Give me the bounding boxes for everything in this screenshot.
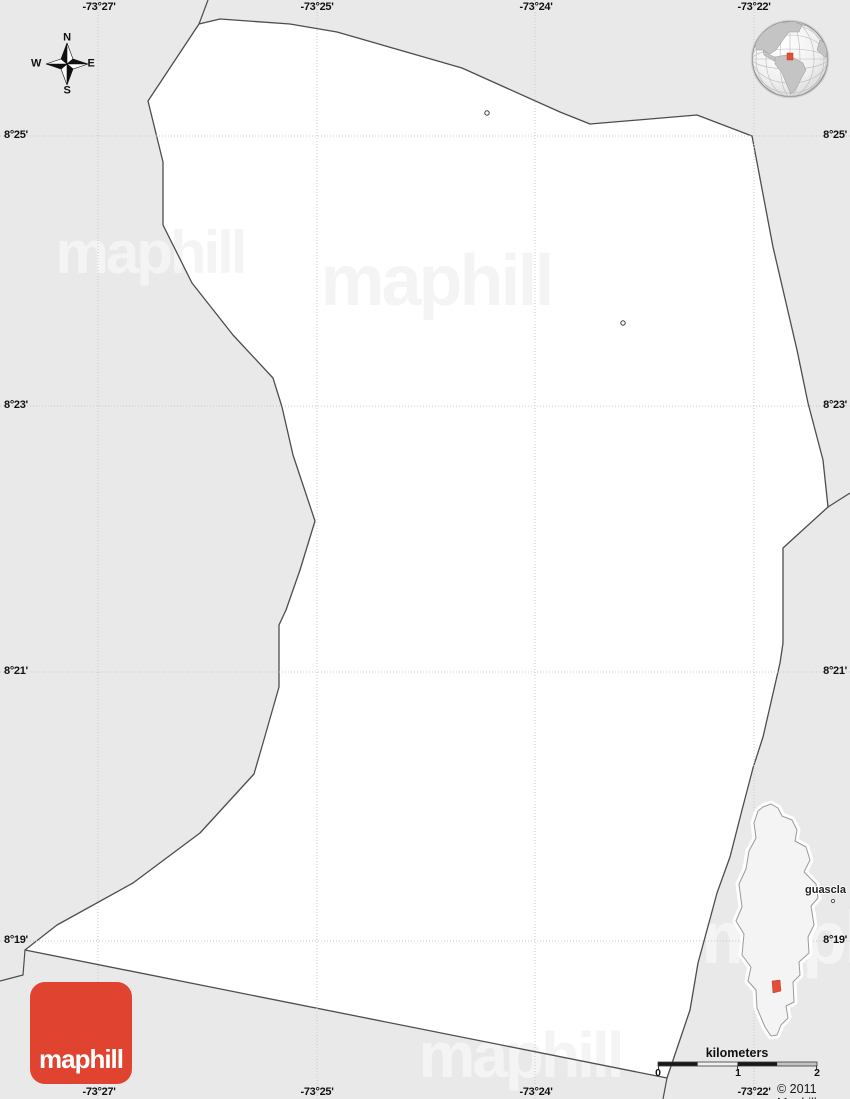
place-point-marker xyxy=(485,111,489,115)
watermark-text: maphill xyxy=(320,241,551,321)
lon-label-bottom: -73°22' xyxy=(737,1087,770,1098)
lat-label-left: 8°19' xyxy=(4,935,28,946)
lat-label-left: 8°21' xyxy=(4,666,28,677)
watermark-text: maphill xyxy=(55,219,244,286)
scale-tick-label: 2 xyxy=(814,1067,820,1079)
place-point-marker xyxy=(621,321,625,325)
lat-label-right: 8°25' xyxy=(823,130,847,141)
lat-label-left: 8°25' xyxy=(4,130,28,141)
lon-label-bottom: -73°24' xyxy=(519,1087,552,1098)
scale-tick-label: 0 xyxy=(655,1067,661,1079)
scale-bar-title: kilometers xyxy=(706,1046,769,1060)
lat-label-right: 8°21' xyxy=(823,666,847,677)
lon-label-top: -73°25' xyxy=(300,2,333,13)
maphill-logo[interactable]: maphill xyxy=(30,982,132,1084)
lat-label-right: 8°23' xyxy=(823,400,847,411)
lon-label-bottom: -73°27' xyxy=(82,1087,115,1098)
inset-highlight-marker xyxy=(772,980,781,993)
lon-label-top: -73°22' xyxy=(737,2,770,13)
maphill-logo-text: maphill xyxy=(30,1044,132,1075)
copyright-notice: © 2011 Maphill xyxy=(777,1082,850,1099)
scale-tick-label: 1 xyxy=(735,1067,741,1079)
map-canvas: maphill maphill maphill maphill xyxy=(0,0,850,1099)
compass-north-label: N xyxy=(63,33,71,44)
inset-place-dot xyxy=(831,899,834,902)
lon-label-top: -73°27' xyxy=(82,2,115,13)
lon-label-top: -73°24' xyxy=(519,2,552,13)
globe-region-marker xyxy=(787,53,793,60)
inset-place-label: guascla xyxy=(805,884,846,896)
compass-east-label: E xyxy=(87,59,94,70)
lat-label-left: 8°23' xyxy=(4,400,28,411)
compass-south-label: S xyxy=(63,86,70,97)
compass-west-label: W xyxy=(31,59,41,70)
watermark-text: maphill xyxy=(418,1019,621,1091)
lon-label-bottom: -73°25' xyxy=(300,1087,333,1098)
lat-label-right: 8°19' xyxy=(823,935,847,946)
map-stage: maphill maphill maphill maphill xyxy=(0,0,850,1099)
